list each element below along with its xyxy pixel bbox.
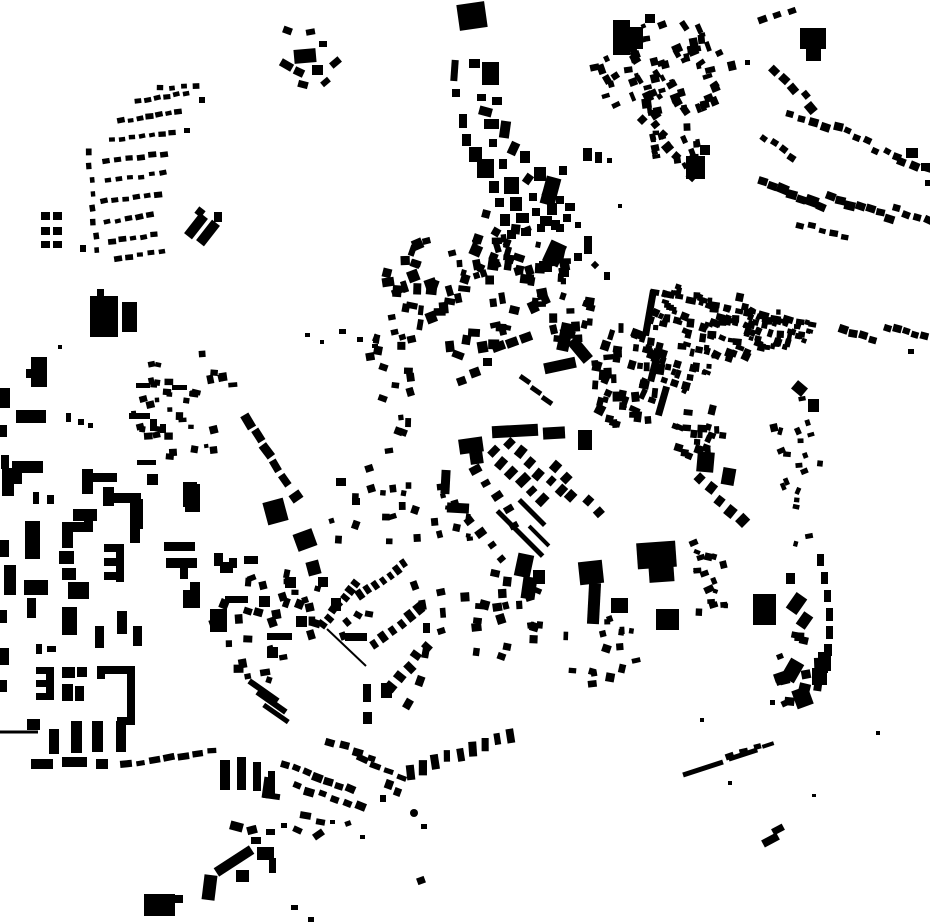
sw-housing-estate — [12, 419, 227, 769]
east-slope-rects — [786, 380, 819, 630]
nw-grid-hamlet — [41, 212, 86, 252]
industrial-blocks-west — [90, 289, 137, 337]
south-diagonal-row — [406, 728, 516, 780]
north-ribbon — [450, 59, 571, 239]
fan-arc-rows — [317, 558, 433, 693]
figure-ground-map — [0, 0, 930, 924]
north-big-square — [456, 1, 487, 31]
sw-terrace-rows — [120, 738, 407, 812]
sw-farm-complex — [144, 845, 276, 916]
ne-scatter-rows — [757, 65, 930, 241]
town-se-terrace-bars — [496, 498, 551, 558]
wedge-east-rows — [838, 324, 930, 345]
town-mid-east — [549, 273, 595, 342]
south-suburb-mid-rects — [220, 562, 367, 724]
center-gap-rects — [336, 478, 360, 505]
map-viewport — [0, 0, 930, 924]
west-suburb — [131, 350, 237, 459]
nw-farmstead — [184, 206, 222, 246]
left-edge-bars — [0, 388, 16, 692]
round-structure — [410, 809, 418, 817]
west-suburb-terraces — [129, 383, 187, 465]
ne-village-core — [589, 20, 736, 121]
west-block-group — [16, 357, 93, 428]
east-slope-scatter — [769, 396, 823, 547]
town-west-band — [365, 314, 416, 454]
nw-terraced-settlement — [86, 83, 200, 262]
north-hamlet — [279, 26, 342, 90]
town-se-scatter — [563, 615, 640, 688]
west-ladder-row — [240, 412, 291, 487]
south-hamlet — [229, 820, 365, 844]
wedge-east-single — [908, 349, 914, 354]
se-cluster-rects — [682, 554, 880, 848]
center-gap-scatter — [328, 464, 421, 544]
south-dots — [291, 876, 426, 922]
nw-terraces-extra — [184, 97, 205, 133]
